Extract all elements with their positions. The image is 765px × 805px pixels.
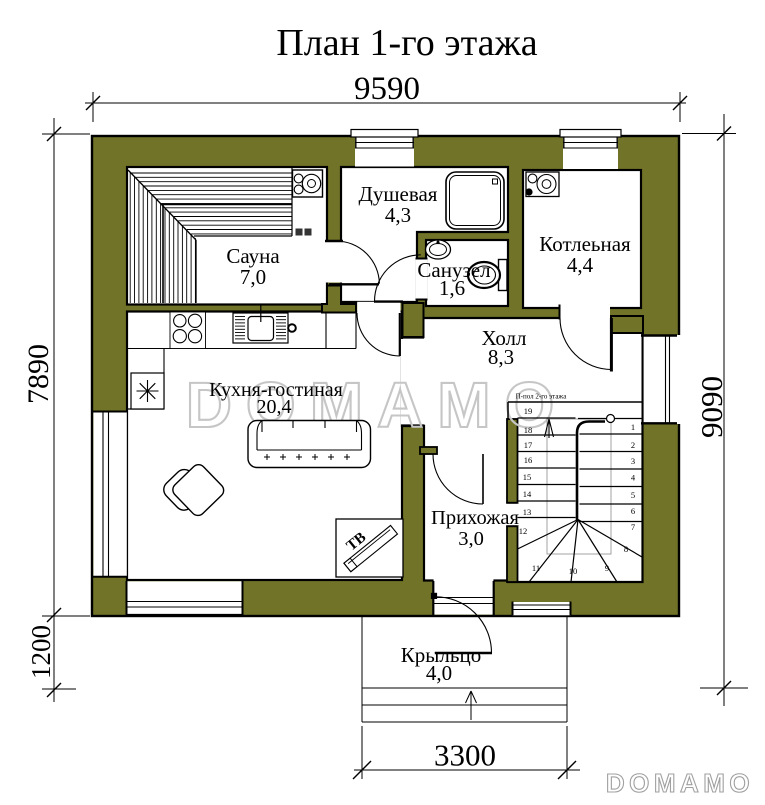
svg-text:17: 17	[524, 440, 533, 450]
svg-text:7,0: 7,0	[240, 265, 266, 289]
svg-text:Прихожая: Прихожая	[431, 507, 519, 529]
svg-text:9590: 9590	[354, 71, 420, 107]
svg-text:3: 3	[631, 456, 635, 466]
svg-text:4,3: 4,3	[385, 203, 411, 227]
svg-text:16: 16	[524, 455, 533, 465]
svg-text:19: 19	[524, 406, 533, 416]
svg-text:1200: 1200	[26, 625, 56, 679]
svg-text:10: 10	[569, 566, 578, 576]
svg-text:П-пол 2-го этажа: П-пол 2-го этажа	[516, 393, 568, 401]
svg-text:1,6: 1,6	[439, 276, 465, 300]
svg-text:2: 2	[631, 440, 635, 450]
svg-text:3300: 3300	[434, 738, 496, 773]
svg-text:9: 9	[605, 563, 609, 573]
svg-text:1: 1	[631, 422, 635, 432]
svg-text:8: 8	[624, 544, 628, 554]
svg-text:15: 15	[523, 472, 532, 482]
svg-text:11: 11	[532, 563, 540, 573]
svg-text:14: 14	[523, 489, 532, 499]
svg-text:4,4: 4,4	[567, 253, 594, 277]
svg-text:18: 18	[524, 425, 533, 435]
svg-text:7: 7	[631, 522, 635, 532]
svg-text:3,0: 3,0	[458, 528, 484, 550]
svg-text:9090: 9090	[694, 376, 729, 438]
svg-text:13: 13	[523, 507, 532, 517]
svg-text:План 1-го этажа: План 1-го этажа	[276, 22, 537, 64]
svg-text:4,0: 4,0	[426, 661, 452, 685]
svg-text:5: 5	[631, 490, 635, 500]
svg-text:7890: 7890	[22, 344, 55, 404]
svg-text:DOMAMO: DOMAMO	[606, 768, 754, 798]
svg-text:8,3: 8,3	[488, 345, 514, 369]
svg-text:20,4: 20,4	[257, 396, 292, 418]
svg-text:12: 12	[519, 526, 528, 536]
svg-text:6: 6	[631, 506, 635, 516]
